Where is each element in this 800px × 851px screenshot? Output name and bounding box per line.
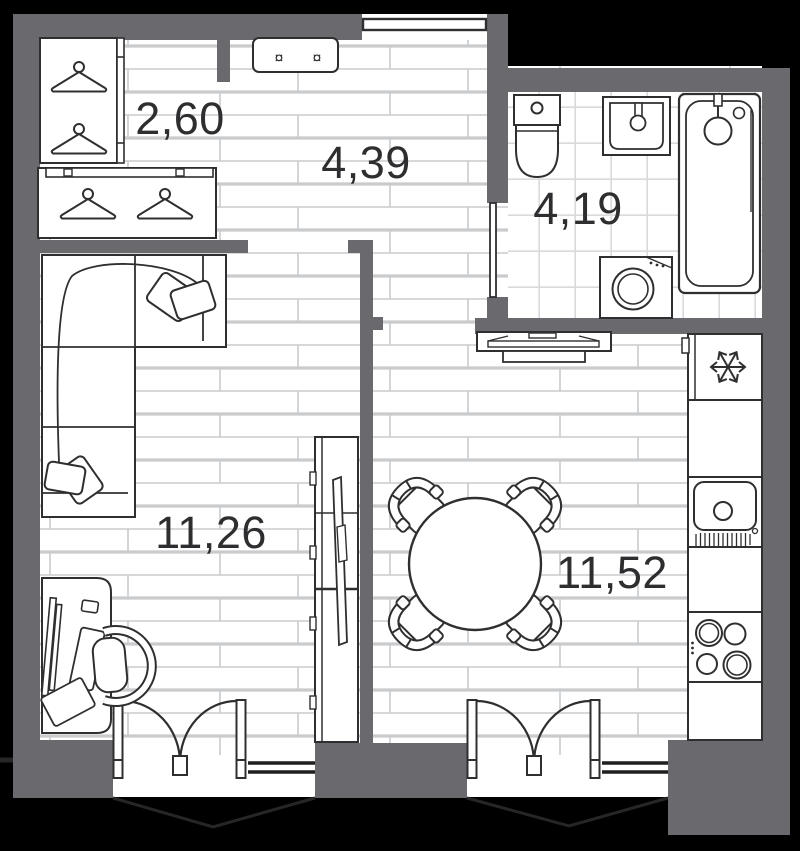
- room-label-living-room: 11,26: [155, 507, 267, 558]
- wall-pier-bottom-center: [315, 743, 467, 798]
- room-label-wardrobe: 2,60: [135, 93, 225, 144]
- wall-bathroom-left-upper: [487, 14, 508, 203]
- door-jamb: [468, 760, 477, 778]
- wardrobe-rail: [181, 168, 213, 177]
- wall-bathroom-left-lower: [487, 297, 508, 318]
- cooktop: [688, 612, 762, 682]
- rail-hook: [176, 169, 184, 176]
- wall-right: [762, 68, 790, 835]
- shower-head: [705, 118, 732, 145]
- counter-cabinet: [688, 400, 762, 477]
- wall-entry-stub: [217, 38, 230, 82]
- sink-drain: [714, 502, 732, 520]
- room-label-hallway: 4,39: [321, 137, 411, 188]
- door-leaf: [237, 700, 246, 763]
- knob: [310, 472, 316, 485]
- wall-center-divider: [360, 240, 373, 743]
- toilet: [514, 95, 560, 177]
- faucet: [635, 103, 642, 116]
- door-jamb: [237, 760, 246, 778]
- entrance-door: [363, 19, 486, 30]
- door-jamb: [114, 760, 123, 778]
- door-center-post: [527, 756, 541, 775]
- exterior-cover-top-right: [508, 0, 800, 66]
- knob: [310, 617, 316, 630]
- closet-upper: [40, 38, 124, 163]
- wall-left: [13, 14, 40, 798]
- fitting-icon: ¤: [313, 50, 322, 67]
- bathroom-sliding-door: [490, 203, 496, 297]
- dining-table: [409, 498, 541, 630]
- door-center-post: [173, 756, 187, 775]
- wall-pier-bottom-left: [13, 740, 113, 798]
- fridge-handle: [682, 338, 689, 353]
- door-leaf: [468, 700, 477, 763]
- entry-cabinet: ¤ ¤: [253, 38, 338, 72]
- room-label-bathroom: 4,19: [533, 183, 623, 234]
- door-leaf: [114, 700, 123, 763]
- wall-bathroom-top: [508, 68, 790, 92]
- kitchen-sink: [688, 477, 762, 547]
- wall-hall-living-divider: [13, 240, 248, 253]
- tub-drain: [734, 108, 745, 119]
- knob: [310, 546, 316, 559]
- desk-phone: [81, 600, 98, 613]
- room-label-kitchen: 11,52: [556, 547, 668, 598]
- wardrobe: [38, 168, 216, 238]
- rail-hook: [64, 169, 72, 176]
- bathtub: [679, 94, 760, 293]
- bathroom-sink: [603, 97, 670, 155]
- knob: [310, 696, 316, 709]
- tub-faucet: [714, 94, 722, 106]
- tv-stand: [310, 437, 358, 742]
- wall-center-divider-stub: [373, 317, 383, 330]
- floor-plan: ¤ ¤: [0, 0, 800, 851]
- door-jamb: [591, 760, 600, 778]
- door-leaf: [591, 700, 600, 763]
- washing-machine: [600, 257, 672, 318]
- fitting-icon: ¤: [275, 50, 284, 67]
- counter-cabinet: [688, 547, 762, 612]
- wall-top: [13, 14, 362, 40]
- counter-cabinet: [688, 682, 762, 740]
- flush-button: [532, 103, 543, 114]
- kitchen-counter: [682, 334, 762, 740]
